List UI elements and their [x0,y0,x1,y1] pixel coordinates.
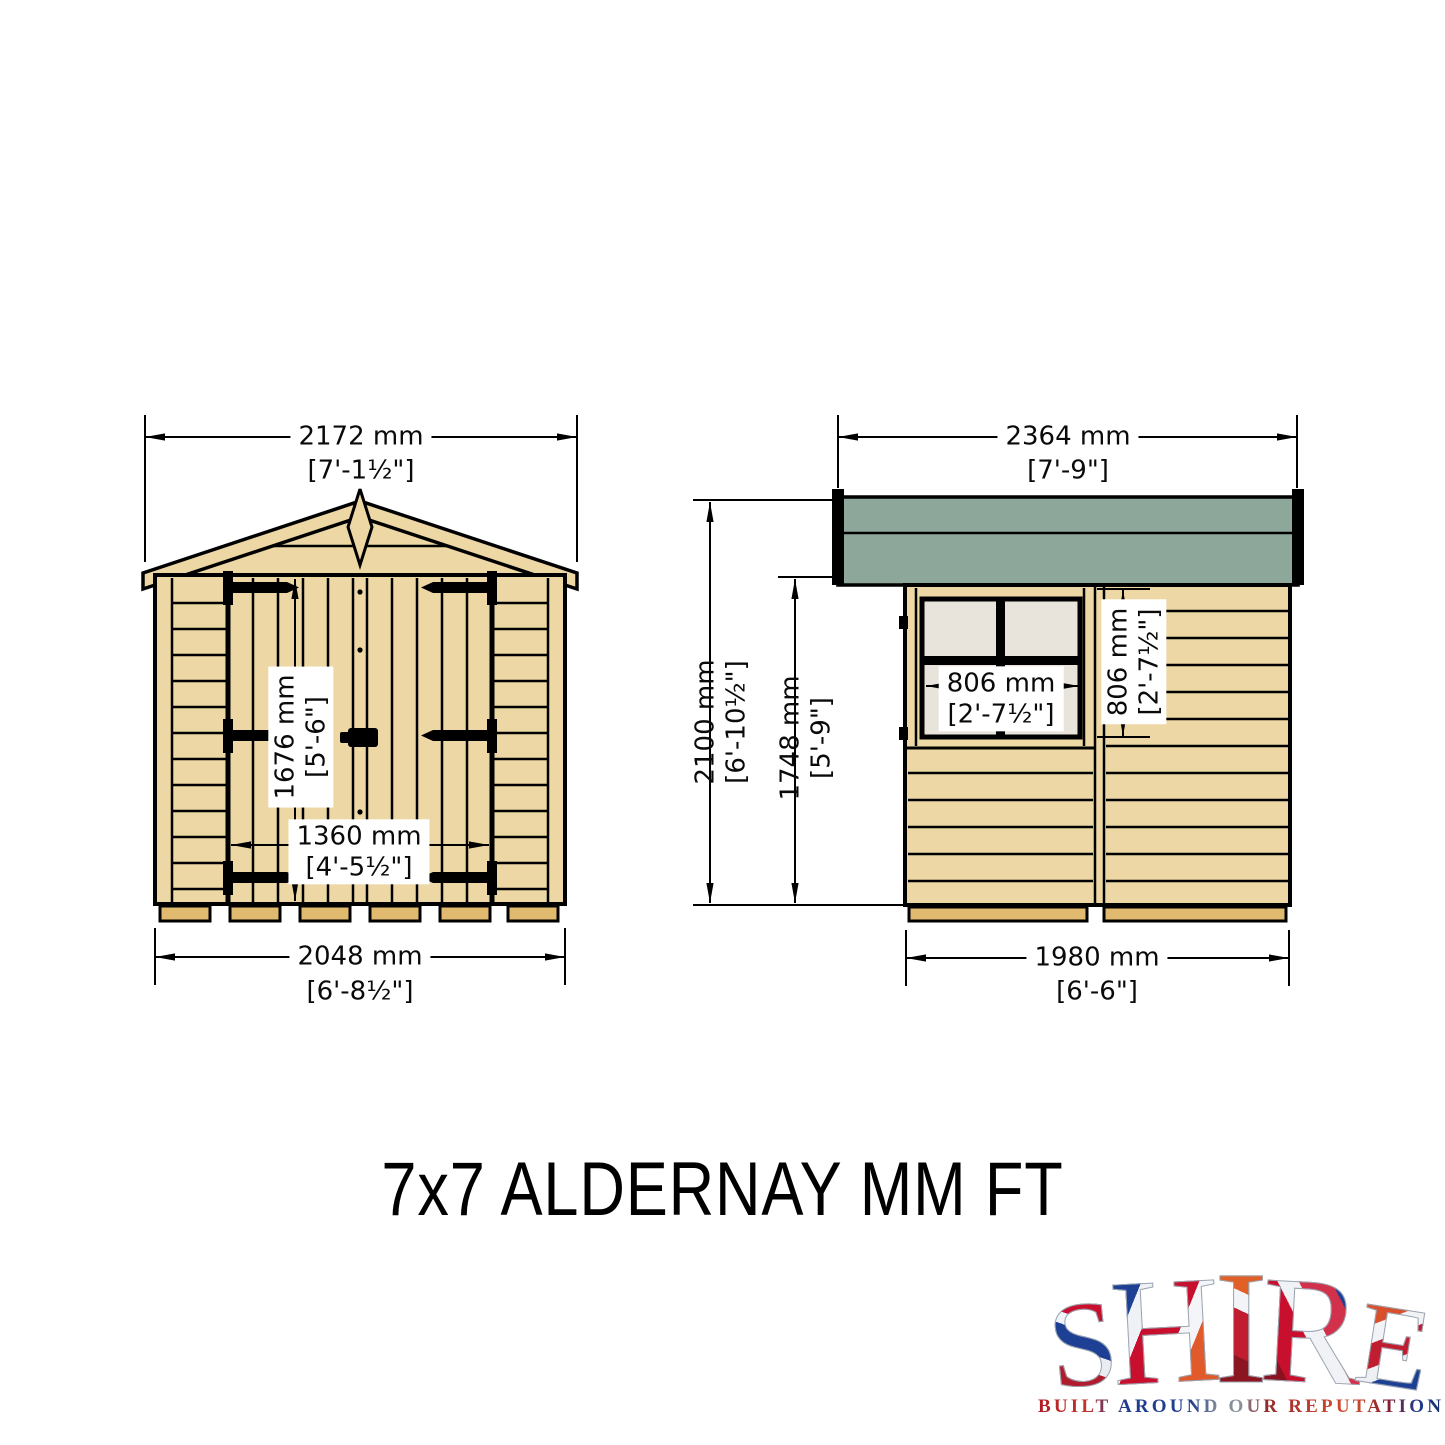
side-window-height: 806 mm [2'-7½"] [1101,600,1166,725]
side-eaves-height-mm: 1748 mm [775,675,806,800]
side-window-width: 806 mm [2'-7½"] [939,666,1064,731]
front-door-width-mm: 1360 mm [296,821,421,852]
front-door-width: 1360 mm [4'-5½"] [288,819,429,884]
side-ridge-height-ft: [6'-10½"] [721,659,752,784]
side-eaves-height: 1748 mm [5'-9"] [775,675,836,800]
front-base-width-ft: [6'-8½"] [298,975,421,1010]
shire-logo: S H I R E BUILT AROUND OUR REPUTATION [1038,1240,1442,1418]
side-floor-bearers [909,907,1286,921]
side-window-height-ft: [2'-7½"] [1134,608,1165,717]
front-door-height-ft: [5'-6"] [301,674,332,799]
front-door-height-mm: 1676 mm [270,674,301,799]
side-ridge-height-mm: 2100 mm [690,659,721,784]
logo-letter-e: E [1352,1297,1437,1397]
front-door-width-ft: [4'-5½"] [296,852,421,883]
side-window-height-mm: 806 mm [1103,608,1134,717]
shed-drawing-sheet: 2172 mm [7'-1½"] 1676 mm [5'-6"] 1360 mm… [0,0,1445,1445]
front-base-width-mm: 2048 mm [289,940,430,975]
front-roof-width-ft: [7'-1½"] [299,454,422,489]
side-eaves-height-ft: [5'-9"] [806,675,837,800]
side-base-length-ft: [6'-6"] [1048,975,1146,1010]
side-window-width-mm: 806 mm [947,668,1056,699]
side-elevation-drawing [832,489,1304,921]
side-base-length-mm: 1980 mm [1026,941,1167,976]
shire-logo-wordmark: S H I R E [1038,1240,1442,1390]
front-door-height: 1676 mm [5'-6"] [268,666,333,807]
side-ridge-height: 2100 mm [6'-10½"] [690,659,751,784]
logo-letter-r: R [1258,1272,1365,1393]
logo-letter-h: H [1108,1272,1224,1393]
front-roof-width-mm: 2172 mm [290,420,431,455]
drawing-title: 7x7 ALDERNAY MM FT [123,1150,1322,1230]
side-roof-length-ft: [7'-9"] [1019,454,1117,489]
front-floor-bearers [160,906,558,921]
side-window-width-ft: [2'-7½"] [947,699,1056,730]
side-roof-length-mm: 2364 mm [997,420,1138,455]
